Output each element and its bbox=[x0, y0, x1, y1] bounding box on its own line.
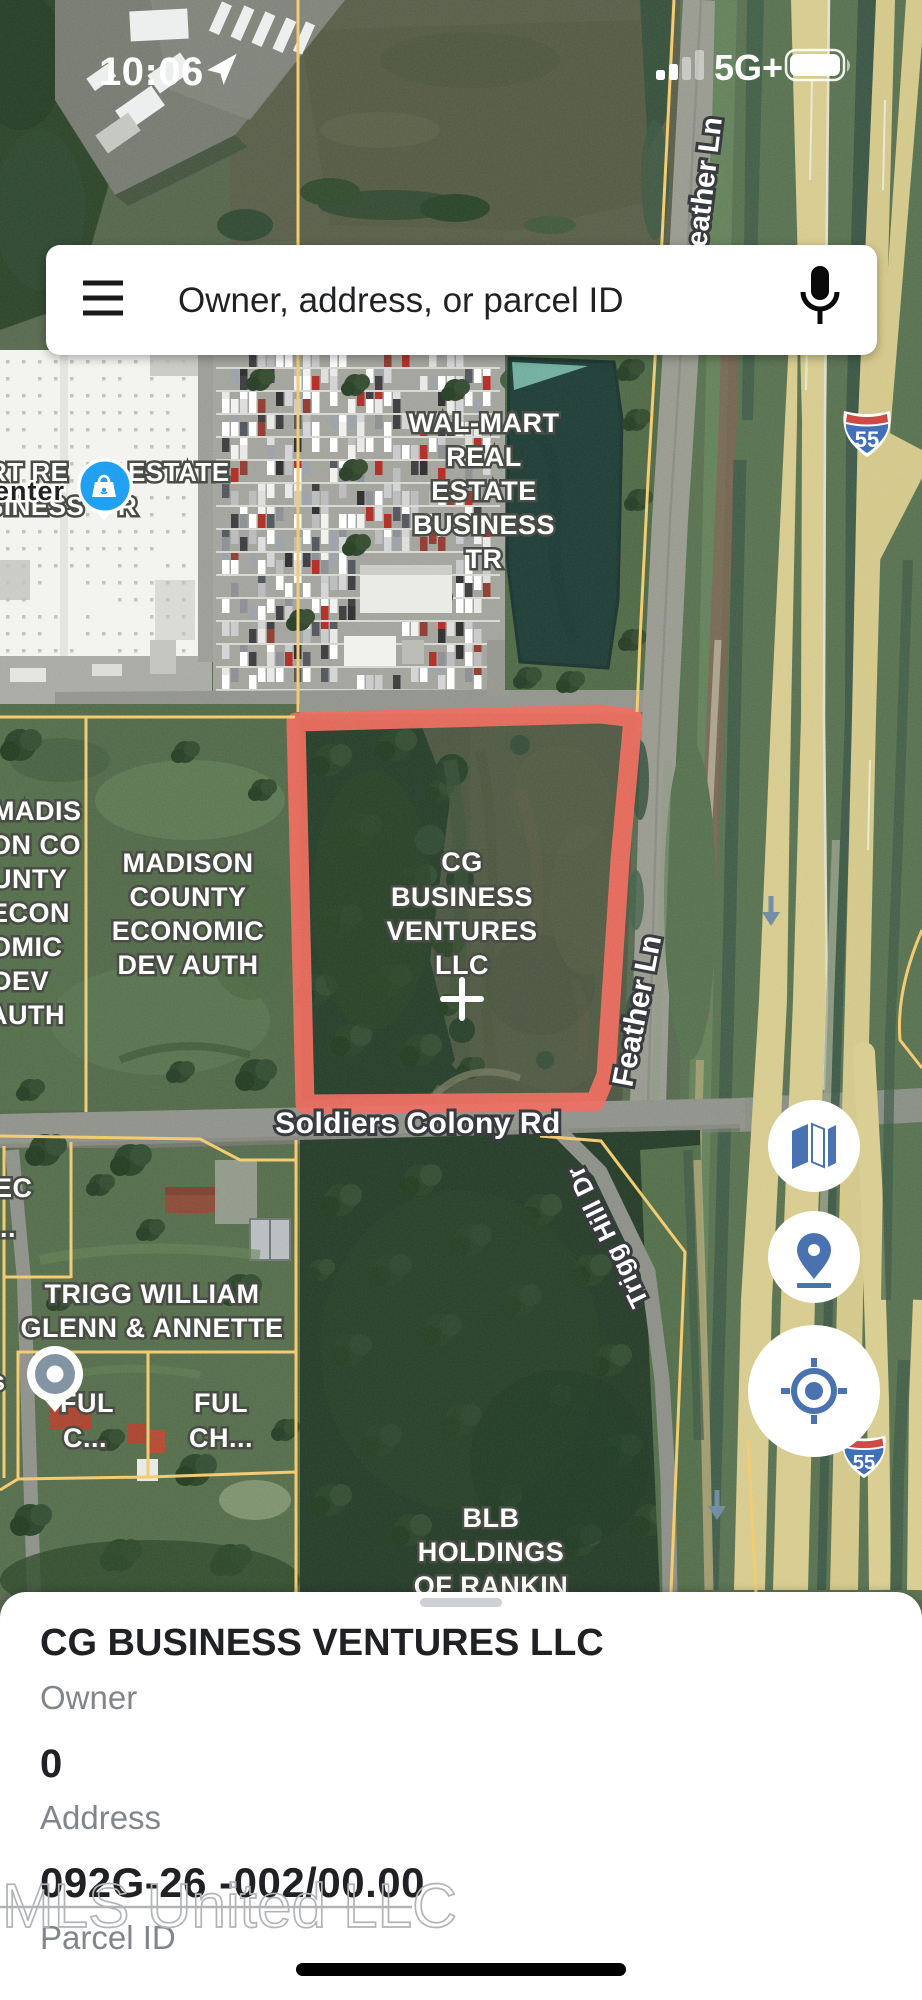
svg-text:5G+: 5G+ bbox=[714, 47, 783, 88]
